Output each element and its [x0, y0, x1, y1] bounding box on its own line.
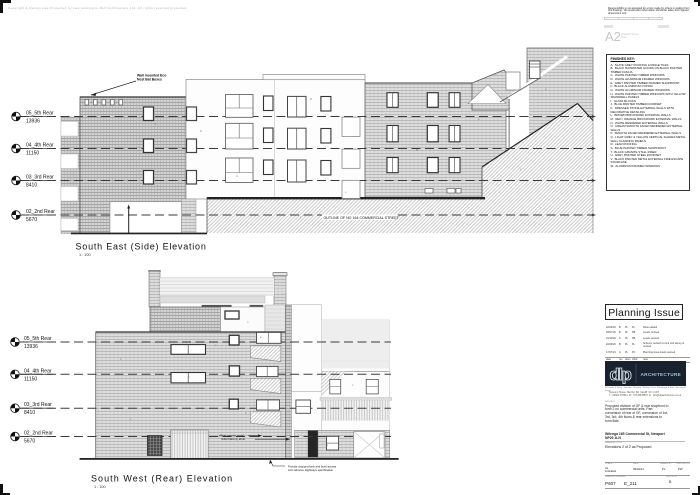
- svg-text:02_2nd Rear: 02_2nd Rear: [26, 209, 55, 215]
- svg-text:05_5th Rear: 05_5th Rear: [24, 336, 52, 342]
- svg-text:South East (Side) Elevation: South East (Side) Elevation: [76, 242, 207, 252]
- svg-text:ARCHITECTURE: ARCHITECTURE: [640, 372, 681, 377]
- svg-text:1 : 100: 1 : 100: [79, 253, 91, 257]
- svg-text:D: D: [310, 97, 312, 101]
- svg-text:5670: 5670: [24, 439, 35, 445]
- svg-text:South West (Rear) Elevation: South West (Rear) Elevation: [91, 474, 233, 484]
- svg-text:13936: 13936: [24, 344, 38, 350]
- svg-text:K: K: [495, 72, 497, 76]
- svg-text:5670: 5670: [26, 217, 37, 223]
- svg-text:8410: 8410: [26, 183, 37, 189]
- svg-text:1 : 100: 1 : 100: [94, 485, 106, 489]
- svg-text:03_3rd Rear: 03_3rd Rear: [24, 402, 52, 408]
- svg-text:03_3rd Rear: 03_3rd Rear: [26, 175, 54, 181]
- svg-text:11150: 11150: [24, 376, 37, 382]
- svg-text:OUTLINE OF NO 164 COMMERCIAL S: OUTLINE OF NO 164 COMMERCIAL STREET: [324, 216, 400, 220]
- svg-text:m: m: [236, 175, 238, 178]
- svg-text:02_2nd Rear: 02_2nd Rear: [24, 431, 53, 437]
- svg-text:dlp: dlp: [609, 366, 631, 384]
- svg-text:04_4th Rear: 04_4th Rear: [24, 368, 52, 374]
- svg-text:N: N: [200, 129, 202, 133]
- svg-text:w: w: [395, 218, 397, 221]
- svg-text:Nest Bat Boxes: Nest Bat Boxes: [137, 78, 162, 82]
- svg-text:to/in adverse Highways specifi: to/in adverse Highways specification: [288, 468, 334, 472]
- svg-text:04_4th Rear: 04_4th Rear: [26, 143, 54, 149]
- svg-text:11150: 11150: [26, 151, 39, 157]
- svg-text:05_5th Rear: 05_5th Rear: [26, 111, 54, 117]
- svg-text:8410: 8410: [24, 410, 35, 416]
- svg-text:M: M: [416, 148, 418, 152]
- svg-text:13936: 13936: [26, 119, 40, 125]
- svg-text:m: m: [326, 444, 328, 447]
- svg-text:Juliet balcony abutt: Juliet balcony abutt: [221, 437, 245, 441]
